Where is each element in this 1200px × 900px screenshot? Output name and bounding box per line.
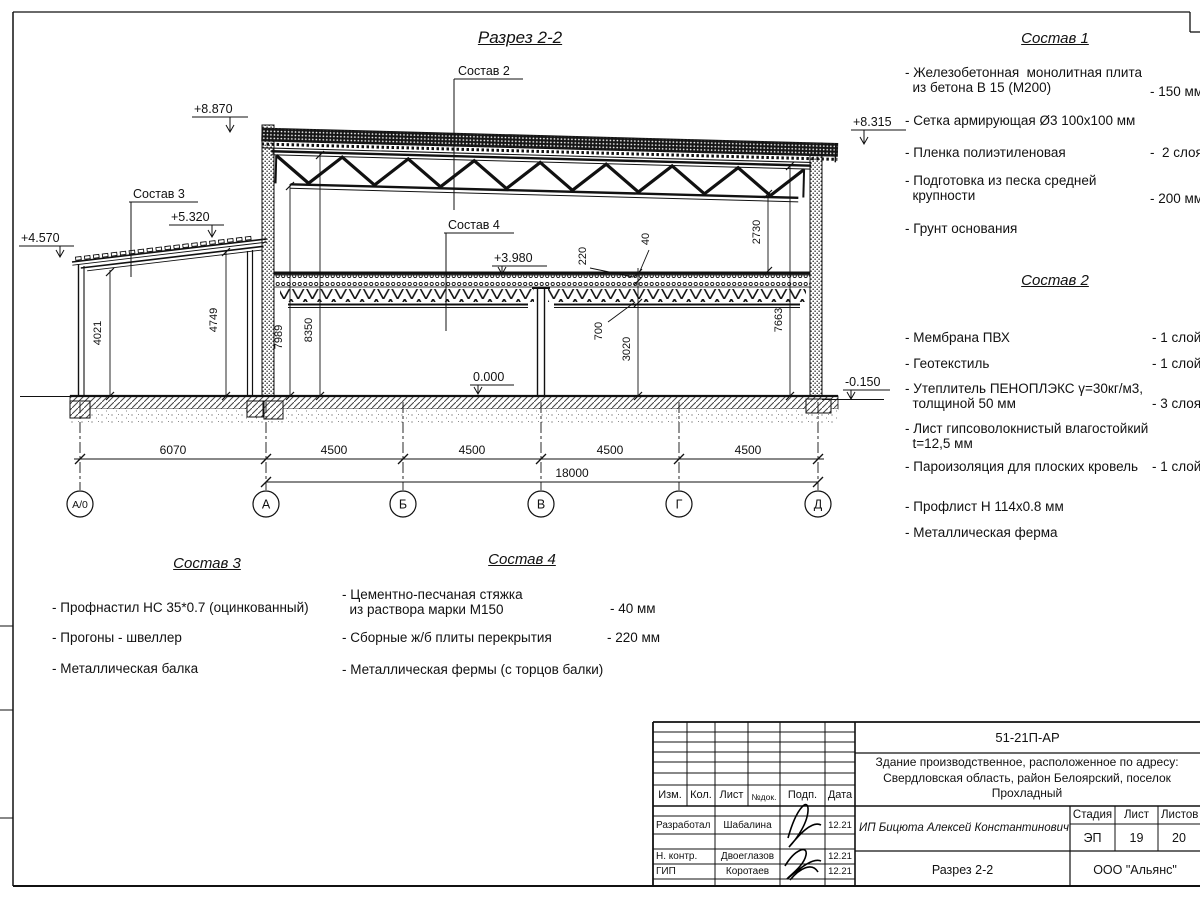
- composition2-value: - 1 слой: [1152, 459, 1200, 474]
- tb-role: ГИП: [656, 866, 676, 877]
- composition3-item: - Профнастил НС 35*0.7 (оцинкованный): [52, 600, 309, 615]
- composition3-item: - Металлическая балка: [52, 661, 198, 676]
- floor-truss-left: [280, 289, 534, 302]
- composition2-item: - Металлическая ферма: [905, 525, 1058, 540]
- drawing-sheet: 6070 4500 4500 4500 4500 18000 А/0 А Б В…: [0, 0, 1200, 900]
- axis-d: Д: [814, 498, 823, 512]
- dim-220: 220: [577, 247, 589, 265]
- tb-role: Разработал: [656, 820, 710, 831]
- dim-4500-3: 4500: [597, 443, 624, 457]
- elev-roof-left: +8.870: [194, 102, 233, 116]
- composition1-value: - 150 мм: [1150, 84, 1200, 99]
- elevation-marks: [19, 117, 906, 399]
- annex: [71, 235, 267, 396]
- tb-date: 12.21: [825, 851, 855, 862]
- composition2-item: - Пароизоляция для плоских кровель: [905, 459, 1138, 474]
- foundation-block: [247, 401, 263, 417]
- dim-40: 40: [640, 233, 652, 245]
- composition2-value: - 3 слоя: [1152, 396, 1200, 411]
- composition1-item: - Подготовка из песка средней крупности: [905, 173, 1096, 203]
- column-axis-v: [532, 288, 550, 396]
- axis-b: Б: [399, 498, 407, 512]
- dim-18000: 18000: [555, 466, 589, 480]
- composition2-item: - Утеплитель ПЕНОПЛЭКС γ=30кг/м3, толщин…: [905, 381, 1143, 411]
- axis-a0: А/0: [72, 499, 88, 511]
- wall-axis-a: [262, 125, 274, 396]
- dim-4500-4: 4500: [735, 443, 762, 457]
- dim-4500-2: 4500: [459, 443, 486, 457]
- wall-axis-d: [810, 143, 822, 400]
- elev-roof-right: +8.315: [853, 115, 892, 129]
- page-title: Разрез 2-2: [420, 28, 620, 48]
- composition4-item: - Цементно-песчаная стяжка из раствора м…: [342, 587, 523, 617]
- composition1-value: - 2 слоя: [1150, 145, 1200, 160]
- tb-date: 12.21: [825, 820, 855, 831]
- mid-floor: [274, 272, 810, 308]
- dim-700: 700: [593, 322, 605, 340]
- dim-2730: 2730: [751, 220, 763, 244]
- roof-assembly: [260, 128, 837, 203]
- composition2-item: - Геотекстиль: [905, 356, 989, 371]
- annex-roof-ticks: [75, 236, 251, 260]
- composition1-item: - Грунт основания: [905, 221, 1017, 236]
- floor-truss-right: [548, 289, 806, 302]
- org-name: ООО "Альянс": [1070, 863, 1200, 877]
- composition1-title: Состав 1: [905, 30, 1200, 47]
- tb-header-podp: Подп.: [780, 789, 825, 801]
- sheet-value: 19: [1115, 831, 1158, 845]
- composition4-value: - 220 мм: [607, 630, 660, 645]
- dim-7989: 7989: [273, 325, 285, 349]
- leader-sostav2: Состав 2: [458, 64, 510, 78]
- ground: [20, 396, 884, 423]
- dim-8350: 8350: [303, 318, 315, 342]
- composition2-item: - Мембрана ПВХ: [905, 330, 1010, 345]
- composition1-item: - Пленка полиэтиленовая: [905, 145, 1066, 160]
- foundation-block: [806, 399, 831, 413]
- composition3-item: - Прогоны - швеллер: [52, 630, 182, 645]
- dim-4749: 4749: [208, 308, 220, 332]
- tb-date: 12.21: [825, 866, 855, 877]
- tb-name: Двоеглазов: [715, 851, 780, 862]
- composition4-value: - 40 мм: [610, 601, 656, 616]
- composition4-item: - Металлическая фермы (с торцов балки): [342, 662, 603, 677]
- tb-header-kol: Кол.: [687, 789, 715, 801]
- axis-v: В: [537, 498, 545, 512]
- composition3-title: Состав 3: [52, 555, 362, 572]
- composition1-item: - Железобетонная монолитная плита из бет…: [905, 65, 1142, 95]
- composition2-title: Состав 2: [905, 272, 1200, 289]
- sheets-label: Листов: [1161, 809, 1200, 821]
- composition4-item: - Сборные ж/б плиты перекрытия: [342, 630, 552, 645]
- sheet-label: Лист: [1115, 809, 1158, 821]
- signature-developer: [788, 805, 821, 847]
- stage-label: Стадия: [1070, 809, 1115, 821]
- axis-bubbles: А/0 А Б В Г Д: [67, 491, 831, 517]
- view-name: Разрез 2-2: [855, 863, 1070, 877]
- elev-ground: 0.000: [473, 370, 504, 384]
- dimension-rows: [74, 454, 824, 487]
- leader-sostav4: Состав 4: [448, 218, 500, 232]
- dim-3020: 3020: [621, 337, 633, 361]
- client-name: ИП Бицюта Алексей Константинович: [858, 822, 1070, 834]
- composition2-value: - 1 слой: [1152, 356, 1200, 371]
- elev-annex-right: +5.320: [171, 210, 210, 224]
- tb-name: Шабалина: [715, 820, 780, 831]
- composition2-value: - 1 слой: [1152, 330, 1200, 345]
- elev-annex-left: +4.570: [21, 231, 60, 245]
- composition2-item: - Профлист Н 114х0.8 мм: [905, 499, 1064, 514]
- tb-role: Н. контр.: [656, 851, 697, 862]
- doc-code: 51-21П-АР: [855, 730, 1200, 745]
- stage-value: ЭП: [1070, 831, 1115, 845]
- dim-4021: 4021: [92, 321, 104, 345]
- composition2-item: - Лист гипсоволокнистый влагостойкий t=1…: [905, 421, 1148, 451]
- composition1-item: - Сетка армирующая Ø3 100х100 мм: [905, 113, 1135, 128]
- axis-g: Г: [676, 498, 683, 512]
- tb-header-data: Дата: [825, 789, 855, 801]
- sheets-value: 20: [1158, 831, 1200, 845]
- dim-4500-1: 4500: [321, 443, 348, 457]
- tb-header-izm: Изм.: [653, 789, 687, 801]
- elev-outside: -0.150: [845, 375, 880, 389]
- foundation-block: [264, 401, 283, 419]
- elev-floor2: +3.980: [494, 251, 533, 265]
- signature-control: [785, 850, 821, 880]
- axis-a: А: [262, 498, 271, 512]
- tb-header-list: Лист: [715, 789, 748, 801]
- project-description: Здание производственное, расположенное п…: [857, 755, 1197, 802]
- composition1-value: - 200 мм: [1150, 191, 1200, 206]
- composition4-title: Состав 4: [342, 551, 702, 568]
- tb-header-doc: №док.: [748, 792, 780, 802]
- dim-6070: 6070: [160, 443, 187, 457]
- dim-7663: 7663: [773, 308, 785, 332]
- leader-sostav3: Состав 3: [133, 187, 185, 201]
- tb-name: Коротаев: [715, 866, 780, 877]
